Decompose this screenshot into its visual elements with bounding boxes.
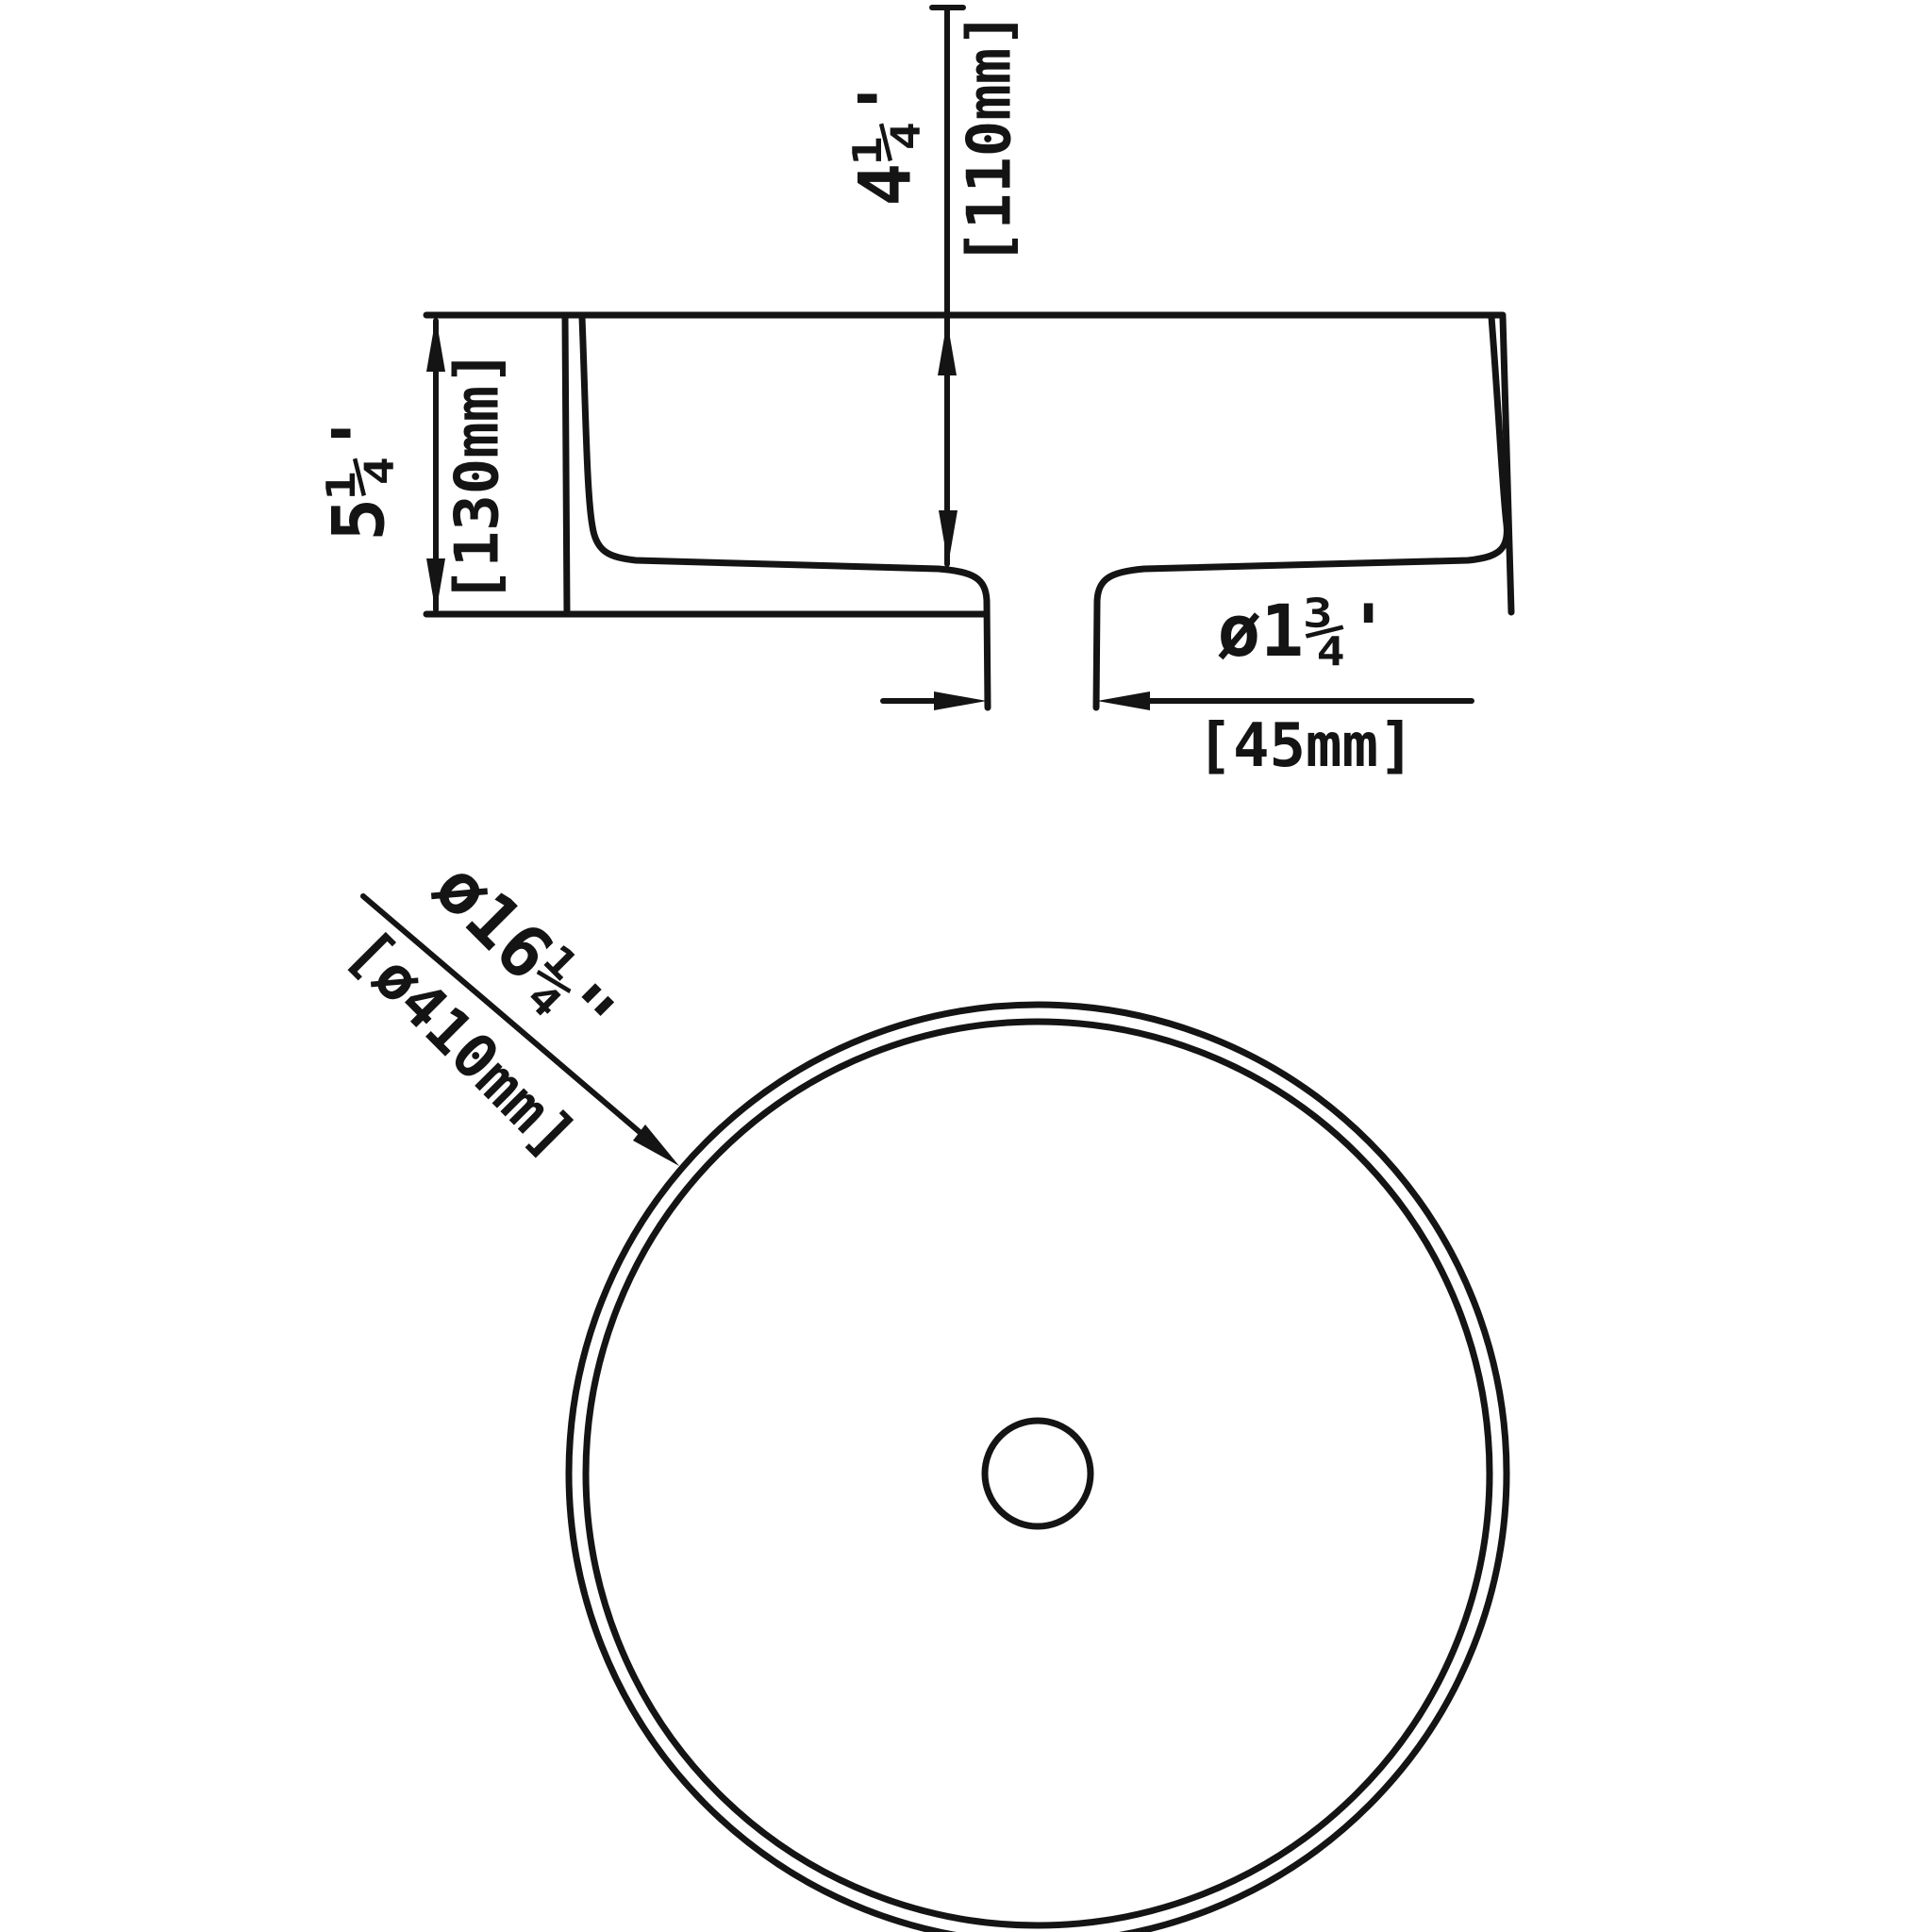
drain-mm-label: [45mm]	[1196, 711, 1414, 781]
left-basin-profile-line	[582, 317, 988, 708]
sink-technical-drawing-page: 5¼' [130mm] 4¼' [110mm] ø1¾' [45mm]	[0, 0, 1932, 1932]
height-mm-label: [130mm]	[442, 349, 512, 604]
drain-hole-circle	[985, 1421, 1091, 1526]
basin-depth-dimension: 4¼' [110mm]	[843, 8, 1025, 565]
right-outer-wall-line	[1503, 317, 1511, 612]
inner-rim-circle	[586, 1022, 1490, 1925]
section-view: 5¼' [130mm] 4¼' [110mm] ø1¾' [45mm]	[317, 8, 1511, 781]
depth-mm-label: [110mm]	[955, 11, 1024, 266]
overall-diameter-dimension: ø16¼" [ø410mm]	[334, 845, 679, 1172]
depth-inches-label: 4¼'	[843, 76, 927, 206]
drain-inches-label: ø1¾'	[1217, 589, 1390, 673]
height-inches-label: 5¼'	[317, 411, 401, 541]
depth-arrow-up	[938, 321, 957, 375]
overall-height-dimension: 5¼' [130mm]	[317, 317, 513, 613]
outer-rim-circle	[569, 1005, 1507, 1932]
drain-diameter-dimension: ø1¾' [45mm]	[883, 589, 1472, 781]
depth-arrow-down	[939, 510, 958, 565]
left-outer-wall-line	[565, 317, 567, 614]
top-view: ø16¼" [ø410mm]	[334, 845, 1507, 1932]
drain-arrow-pointing-right	[934, 691, 987, 710]
sink-dimension-drawing: 5¼' [130mm] 4¼' [110mm] ø1¾' [45mm]	[0, 0, 1932, 1932]
